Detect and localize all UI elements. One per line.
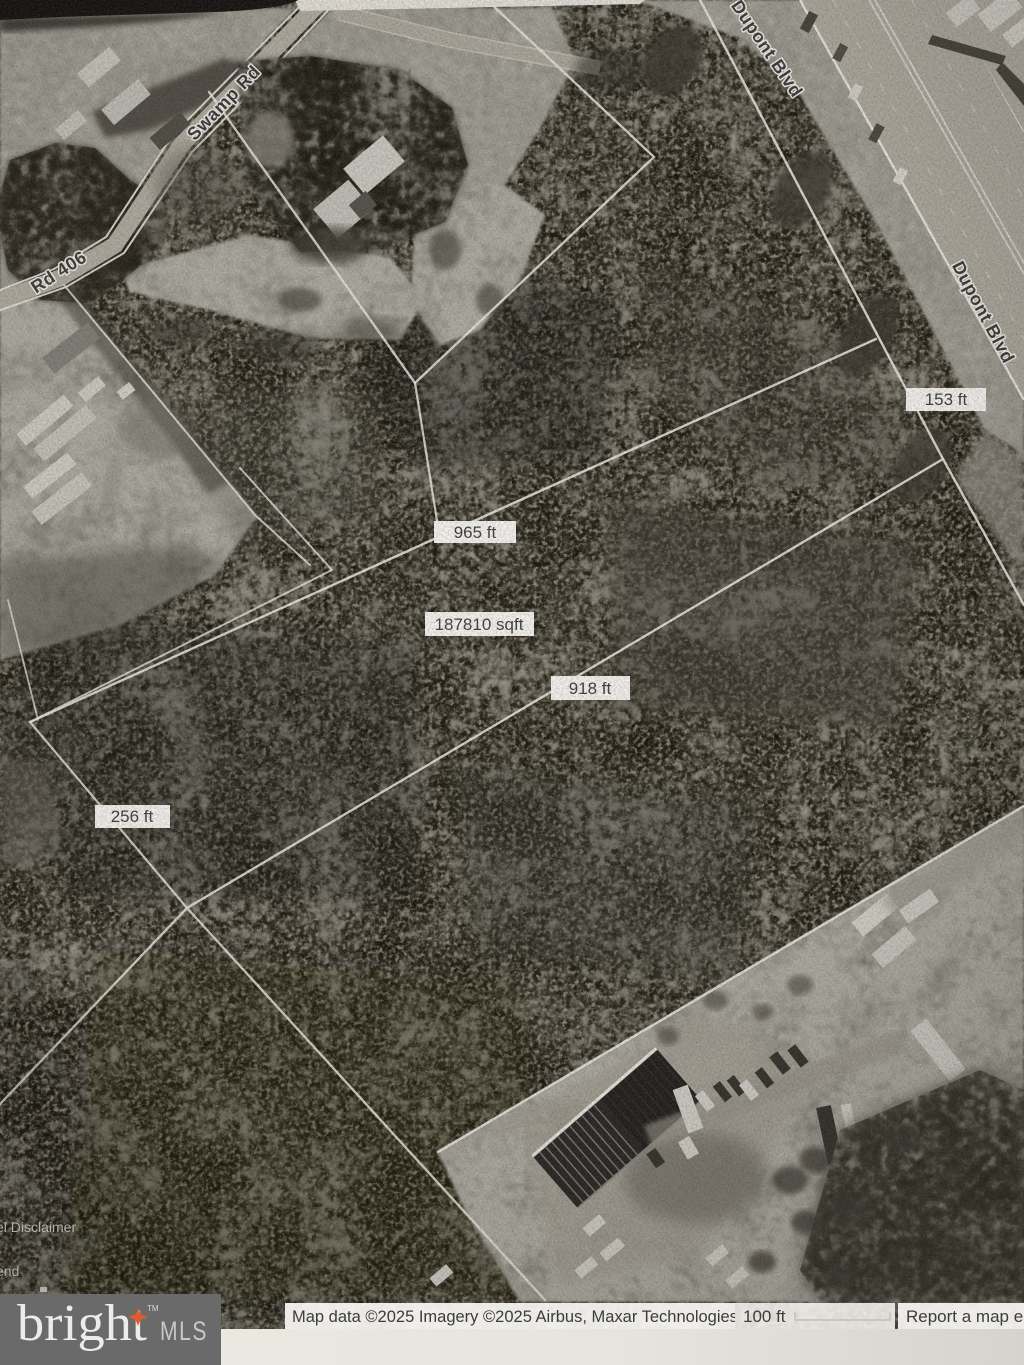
svg-text:100 ft: 100 ft	[743, 1307, 786, 1326]
svg-text:TM: TM	[147, 1304, 159, 1313]
svg-text:MLS: MLS	[160, 1316, 208, 1346]
svg-text:Report a map erro: Report a map erro	[906, 1307, 1024, 1326]
svg-text:bright: bright	[17, 1295, 148, 1352]
svg-text:Map data ©2025 Imagery ©2025 A: Map data ©2025 Imagery ©2025 Airbus, Max…	[292, 1308, 738, 1326]
